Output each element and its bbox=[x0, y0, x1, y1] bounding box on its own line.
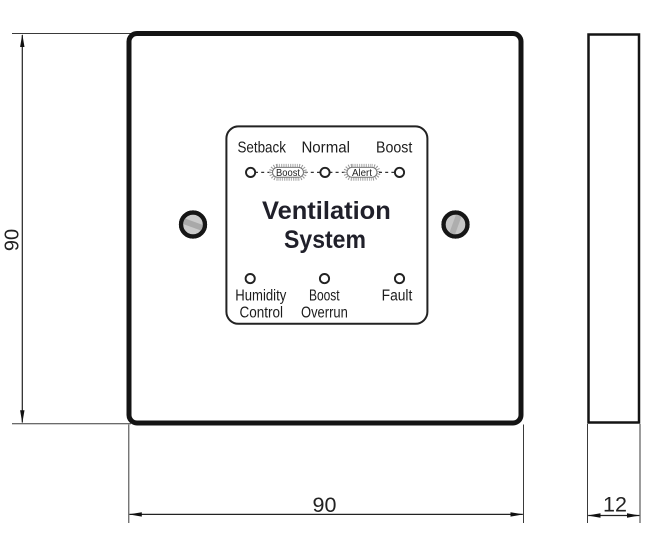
svg-text:System: System bbox=[284, 226, 366, 254]
svg-text:Overrun: Overrun bbox=[301, 305, 348, 322]
svg-text:Humidity: Humidity bbox=[235, 288, 286, 305]
svg-text:Ventilation: Ventilation bbox=[262, 197, 391, 225]
svg-text:Setback: Setback bbox=[237, 140, 286, 157]
svg-text:90: 90 bbox=[1, 229, 23, 251]
svg-text:Alert: Alert bbox=[352, 168, 372, 179]
svg-text:90: 90 bbox=[313, 493, 337, 517]
svg-text:Boost: Boost bbox=[376, 140, 413, 157]
svg-text:Boost: Boost bbox=[309, 288, 340, 305]
svg-text:Control: Control bbox=[240, 305, 284, 322]
svg-text:12: 12 bbox=[603, 493, 627, 517]
svg-text:Normal: Normal bbox=[301, 140, 350, 157]
svg-text:Boost: Boost bbox=[276, 168, 300, 179]
svg-text:Fault: Fault bbox=[382, 288, 413, 305]
